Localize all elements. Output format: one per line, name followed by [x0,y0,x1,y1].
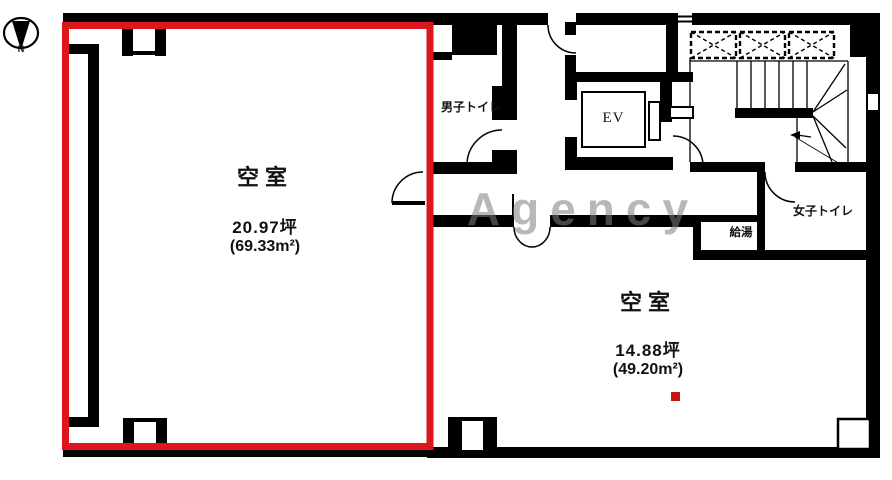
elevator-label: EV [582,110,645,127]
right-room-name: 空室 [548,291,748,315]
floor-plan-canvas: N 空室 20.97坪 (69.33m²) 空室 14.88坪 (49.20m²… [0,0,892,480]
mens-toilet-label: 男子トイレ [437,101,505,114]
left-room-name: 空室 [165,166,365,190]
womens-toilet-label: 女子トイレ [789,205,857,218]
red-marker-dot [671,392,680,401]
left-room-area-m2: (69.33m²) [165,238,365,256]
right-room-area-m2: (49.20m²) [548,361,748,379]
staircase [690,32,848,165]
floor-plan-drawing [0,0,892,480]
compass-north-label: N [13,45,29,55]
watermark-text: Agency [428,186,738,232]
left-room-area-tsubo: 20.97坪 [165,219,365,238]
right-room-area-tsubo: 14.88坪 [548,342,748,361]
